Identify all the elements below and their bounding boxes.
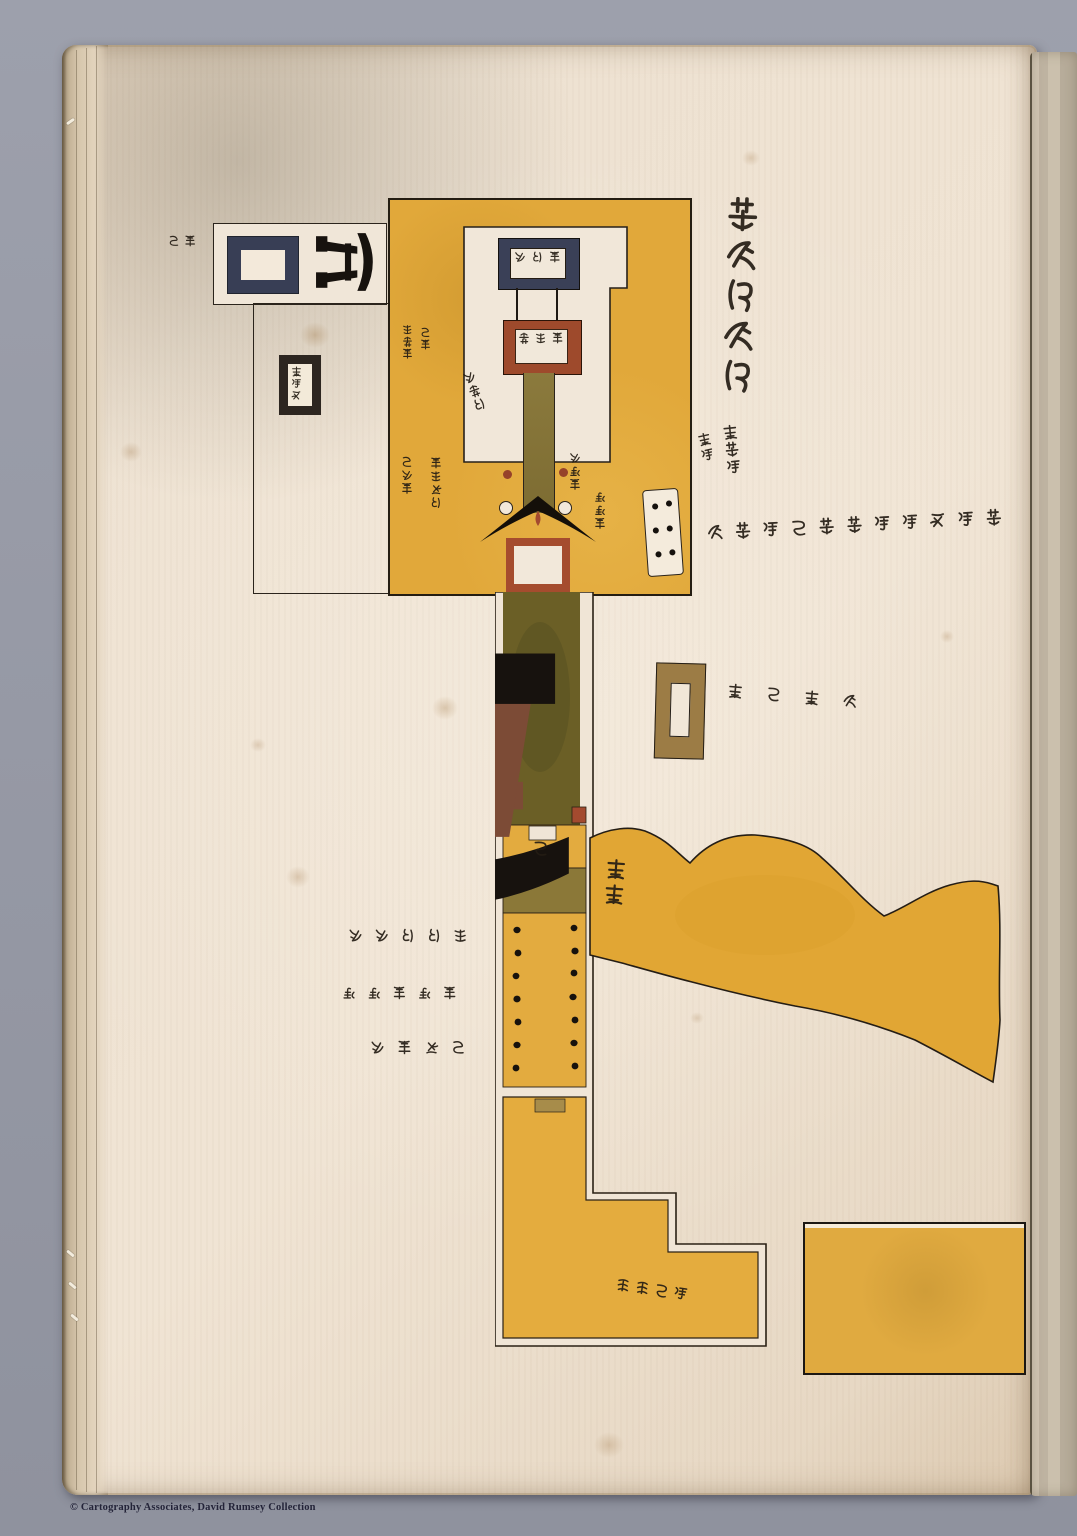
annotation-main-hall-label — [514, 252, 561, 264]
annotation-basin-label — [291, 366, 302, 401]
annotation-compound-note-west-b — [420, 327, 431, 350]
annotation-grove-label — [602, 857, 627, 906]
annotation-worship-hall-label — [518, 333, 564, 345]
annotation-layer — [0, 0, 1077, 1536]
annotation-compound-note-sw-a — [401, 456, 413, 494]
caption: © Cartography Associates, David Rumsey C… — [70, 1502, 316, 1513]
annotation-west-note-2 — [342, 986, 457, 1000]
annotation-compound-note-se-b — [594, 491, 606, 529]
annotation-note-right-b — [696, 431, 716, 463]
annotation-west-note-1 — [348, 928, 468, 943]
annotation-gate-note — [532, 840, 549, 857]
annotation-compound-note-se-a — [569, 452, 581, 490]
annotation-compound-note-west-a — [402, 324, 413, 359]
annotation-compound-note-sw-b — [430, 457, 442, 509]
annotation-compound-note-suzu — [461, 369, 487, 413]
annotation-west-note-3 — [370, 1040, 466, 1055]
annotation-bench-note — [168, 236, 196, 248]
annotation-note-right-a — [721, 423, 742, 476]
annotation-path-label — [727, 682, 859, 709]
annotation-title — [719, 196, 762, 394]
annotation-torii-note — [614, 1277, 689, 1302]
scanned-atlas-page: { "page": { "caption": "© Cartography As… — [0, 0, 1077, 1536]
annotation-route-note — [706, 508, 1004, 542]
